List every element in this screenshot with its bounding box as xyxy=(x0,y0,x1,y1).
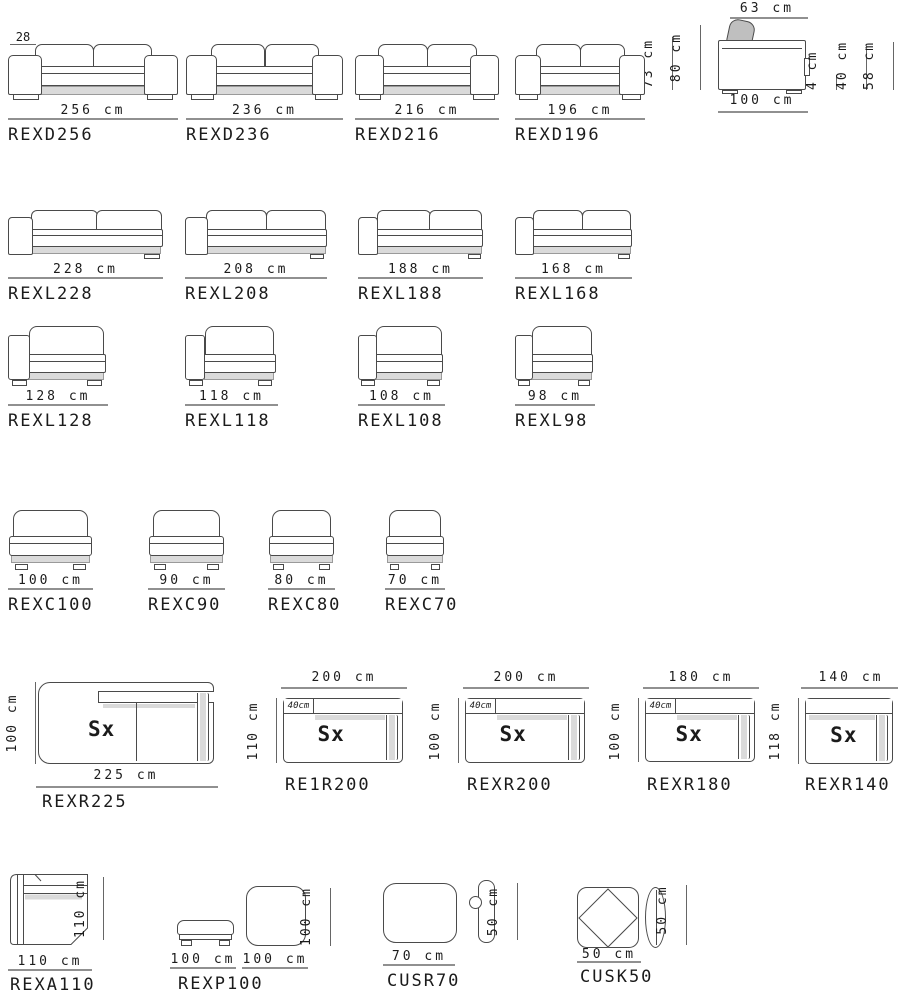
armrest-left xyxy=(8,335,30,380)
terminal-top-view-drawing: 40cm Sx xyxy=(645,698,755,762)
width-dim-label: 118 cm xyxy=(185,390,278,404)
depth-dim-label: 100 cm xyxy=(720,94,804,108)
dim-line xyxy=(638,698,639,762)
dim-line xyxy=(268,588,335,590)
dim-line xyxy=(463,687,589,689)
armrest-right xyxy=(197,693,209,761)
back-cushion xyxy=(272,510,331,539)
seat-cushion xyxy=(9,536,92,556)
seat-cushion xyxy=(149,536,224,556)
panel-rexl228: 228 cm REXL228 xyxy=(8,210,163,304)
armrest-left xyxy=(8,55,42,95)
sofa-side-body xyxy=(718,40,806,90)
dim-line xyxy=(643,687,759,689)
back-depth-dim-label: 40cm xyxy=(646,699,676,714)
panel-re1r200: 200 cm 110 cm 40cm Sx RE1R200 xyxy=(253,663,413,803)
panel-rexl108: 108 cm REXL108 xyxy=(358,326,445,431)
width-dim-label: 100 cm xyxy=(242,953,308,967)
dim-line xyxy=(330,888,331,946)
seat-cushion xyxy=(374,229,483,247)
armrest-right xyxy=(568,715,580,760)
foot xyxy=(618,254,630,259)
base-shade xyxy=(28,372,104,380)
dim-line xyxy=(385,588,445,590)
foot xyxy=(431,564,441,570)
dim-line xyxy=(577,961,641,963)
base-shade xyxy=(533,246,631,254)
seat-cushion xyxy=(374,354,444,373)
model-code: REXA110 xyxy=(10,975,96,995)
dim-line xyxy=(458,698,459,763)
module-one-arm-drawing xyxy=(8,326,108,386)
panel-rexd196: 196 cm REXD196 xyxy=(515,44,645,145)
width-dim-label: 228 cm xyxy=(8,263,163,277)
width-dim-label: 168 cm xyxy=(515,263,632,277)
model-code: REXR140 xyxy=(805,775,891,795)
model-code: REXL118 xyxy=(185,411,278,431)
dim-line xyxy=(185,277,327,279)
model-code: REXC100 xyxy=(8,595,93,615)
base-shade xyxy=(11,555,91,563)
foot xyxy=(361,380,374,386)
module-one-arm-drawing xyxy=(185,326,278,386)
panel-cusk50: 50 cm 50 cm CUSK50 xyxy=(570,855,710,1001)
width-dim-label: 100 cm xyxy=(170,953,236,967)
panel-rexd256: 28 256 cm REXD256 xyxy=(8,44,178,145)
foot xyxy=(154,564,166,570)
back-cushion xyxy=(376,326,441,357)
dim-line xyxy=(517,883,518,940)
foot xyxy=(12,380,27,386)
armrest-left xyxy=(515,55,541,95)
model-code: RE1R200 xyxy=(285,775,371,795)
back-cushion xyxy=(389,510,442,539)
model-code: REXL168 xyxy=(515,284,632,304)
depth-dim-label: 100 cm xyxy=(6,682,20,764)
module-one-arm-drawing xyxy=(358,326,445,386)
dim-line xyxy=(35,682,36,764)
armrest-left xyxy=(358,217,378,255)
panel-rexl118: 118 cm REXL118 xyxy=(185,326,278,431)
model-code: REXL98 xyxy=(515,411,595,431)
foot xyxy=(258,380,272,386)
armrest-left xyxy=(185,335,205,380)
seat-cushion xyxy=(32,66,154,86)
panel-rexc70: 70 cm REXC70 xyxy=(385,510,445,615)
panel-rexc80: 80 cm REXC80 xyxy=(268,510,335,615)
model-code: CUSR70 xyxy=(387,971,460,991)
depth-dim-label: 100 cm xyxy=(300,888,314,946)
width-dim-label: 128 cm xyxy=(8,390,108,404)
panel-rexd236: 236 cm REXD236 xyxy=(186,44,343,145)
dim-line xyxy=(8,969,92,971)
depth-dim-label: 110 cm xyxy=(247,699,261,763)
total-height-dim-label: 80 cm xyxy=(670,25,684,90)
model-code: REXL188 xyxy=(358,284,483,304)
dim-line xyxy=(103,877,104,940)
width-dim-label: 180 cm xyxy=(645,671,757,685)
armrest-right xyxy=(144,55,178,95)
seat-divider-line xyxy=(136,703,137,761)
panel-rexr140: 140 cm 118 cm Sx REXR140 xyxy=(775,663,899,803)
seat-cushion xyxy=(28,229,163,247)
model-code: REXR225 xyxy=(42,792,128,812)
back-cushion xyxy=(532,326,592,357)
dim-line xyxy=(383,964,455,966)
model-code: REXL128 xyxy=(8,411,108,431)
width-dim-label: 216 cm xyxy=(355,104,499,118)
button-detail xyxy=(469,896,482,909)
armrest-left xyxy=(186,55,217,95)
seat-cushion xyxy=(386,536,445,556)
armrest-left xyxy=(185,217,208,255)
dim-line xyxy=(242,967,308,969)
foot xyxy=(468,254,481,259)
dim-line xyxy=(358,277,483,279)
panel-rexr225: 100 cm Sx 225 cm REXR225 xyxy=(8,663,228,823)
dim-line xyxy=(8,118,178,120)
height-dim-label: 50 cm xyxy=(487,883,501,940)
dim-line xyxy=(893,42,894,90)
model-code: REXL208 xyxy=(185,284,327,304)
base-shade xyxy=(35,86,151,95)
arm-height-dim-label: 58 cm xyxy=(863,42,877,90)
base-shade xyxy=(206,246,325,254)
width-dim-label: 70 cm xyxy=(385,574,445,588)
depth-dim-label: 118 cm xyxy=(769,698,783,764)
model-code: REXR200 xyxy=(467,775,553,795)
dim-line xyxy=(36,786,218,788)
seat-cushion xyxy=(375,66,479,86)
model-code: REXC80 xyxy=(268,595,335,615)
foot xyxy=(219,940,230,946)
foot xyxy=(181,940,192,946)
width-dim-label: 196 cm xyxy=(515,104,645,118)
foot xyxy=(273,564,284,570)
sofa-two-arm-drawing xyxy=(355,44,499,100)
panel-rexc90: 90 cm REXC90 xyxy=(148,510,225,615)
dim-line xyxy=(686,885,687,945)
base-shade xyxy=(204,372,275,380)
clearance-dim-label: 4 cm xyxy=(806,54,820,90)
panel-rexl188: 188 cm REXL188 xyxy=(358,210,483,304)
base-shade xyxy=(211,86,318,95)
band-shade xyxy=(677,715,737,720)
foot xyxy=(15,564,29,570)
spec-sheet: 28 256 cm REXD256 236 cm REXD236 xyxy=(0,0,899,1001)
foot xyxy=(518,380,530,386)
module-armless-drawing xyxy=(268,510,335,570)
band-shade xyxy=(809,715,875,720)
backrest-band xyxy=(806,699,892,714)
width-dim-label: 70 cm xyxy=(383,950,455,964)
sofa-two-arm-drawing xyxy=(515,44,645,100)
width-dim-label: 200 cm xyxy=(283,671,405,685)
depth-dim-label: 110 cm xyxy=(74,877,88,940)
foot xyxy=(578,380,590,386)
base-shade xyxy=(387,555,443,563)
width-dim-label: 200 cm xyxy=(465,671,587,685)
base-shade xyxy=(377,246,482,254)
terminal-top-view-drawing: Sx xyxy=(805,698,893,764)
width-dim-label: 256 cm xyxy=(8,104,178,118)
armrest-left xyxy=(515,217,534,255)
foot xyxy=(73,564,87,570)
seat-cushion xyxy=(203,229,327,247)
foot xyxy=(310,254,324,259)
width-dim-label: 236 cm xyxy=(186,104,343,118)
seat-cushion xyxy=(530,229,632,247)
pouf-cushion xyxy=(177,920,234,935)
back-cushion xyxy=(153,510,221,539)
width-dim-label: 90 cm xyxy=(148,574,225,588)
width-dim-label: 100 cm xyxy=(8,574,93,588)
panel-rexl208: 208 cm REXL208 xyxy=(185,210,327,304)
sofa-one-arm-drawing xyxy=(185,210,327,259)
sx-marker: Sx xyxy=(88,717,115,741)
base-shade xyxy=(378,86,476,95)
seat-cushion xyxy=(202,354,276,373)
depth-dim-label: 100 cm xyxy=(429,699,443,763)
width-dim-label: 140 cm xyxy=(803,671,899,685)
armrest-right xyxy=(470,55,499,95)
base-shade xyxy=(531,372,592,380)
width-dim-label: 208 cm xyxy=(185,263,327,277)
width-dim-label: 225 cm xyxy=(38,769,214,783)
panel-rexr180: 180 cm 100 cm 40cm Sx REXR180 xyxy=(615,663,765,803)
seat-cushion xyxy=(529,354,593,373)
base-shade xyxy=(375,372,441,380)
diamond-stitch-detail xyxy=(578,888,637,947)
base-shade xyxy=(536,86,624,95)
width-dim-label: 98 cm xyxy=(515,390,595,404)
foot xyxy=(144,254,160,259)
back-cushion xyxy=(13,510,88,539)
dim-line xyxy=(281,687,407,689)
cushion-front-view-drawing xyxy=(383,883,457,943)
dim-line xyxy=(801,687,898,689)
model-code: CUSK50 xyxy=(580,967,653,987)
panel-rexr200: 200 cm 100 cm 40cm Sx REXR200 xyxy=(435,663,595,803)
dim-line xyxy=(8,588,93,590)
sofa-two-arm-drawing: 28 xyxy=(8,44,178,100)
dim-line xyxy=(185,404,278,406)
width-dim-label: 50 cm xyxy=(577,948,641,962)
sofa-one-arm-drawing xyxy=(358,210,483,259)
depth-dim-label: 100 cm xyxy=(609,699,623,763)
chaise-top-view-drawing: Sx xyxy=(38,682,214,764)
panel-rexp100: 100 cm 100 cm 100 cm REXP100 xyxy=(168,855,348,1001)
foot xyxy=(427,380,440,386)
panel-cusr70: 50 cm 70 cm CUSR70 xyxy=(375,855,525,1001)
foot xyxy=(207,564,219,570)
model-code: REXC90 xyxy=(148,595,225,615)
foot xyxy=(390,564,400,570)
seat-cushion xyxy=(533,66,627,86)
panel-rexd216: 216 cm REXD216 xyxy=(355,44,499,145)
sofa-one-arm-drawing xyxy=(8,210,163,259)
armrest-left xyxy=(355,55,384,95)
base-shade xyxy=(270,555,333,563)
pouf-top-view-drawing xyxy=(246,886,306,946)
width-dim-label: 80 cm xyxy=(268,574,335,588)
pouf-base xyxy=(179,934,232,940)
band-shade xyxy=(497,715,567,720)
armrest-right xyxy=(386,715,398,760)
model-code: REXR180 xyxy=(647,775,733,795)
width-dim-label: 188 cm xyxy=(358,263,483,277)
dim-line xyxy=(358,404,445,406)
panel-rexl128: 128 cm REXL128 xyxy=(8,326,108,431)
module-armless-drawing xyxy=(148,510,225,570)
back-cushion xyxy=(29,326,104,357)
dim-line xyxy=(8,404,108,406)
dim-line xyxy=(515,404,595,406)
back-cushion xyxy=(205,326,275,357)
dim-line xyxy=(355,118,499,120)
side-view-panel: 63 cm 73 cm 80 cm 4 cm 40 cm 58 cm 100 c… xyxy=(640,0,899,120)
model-code: REXL228 xyxy=(8,284,163,304)
foot xyxy=(189,380,203,386)
armrest-left xyxy=(8,217,33,255)
sofa-one-arm-drawing xyxy=(515,210,632,259)
sx-marker: Sx xyxy=(830,723,857,747)
model-code: REXL108 xyxy=(358,411,445,431)
armrest-right xyxy=(619,55,645,95)
seat-cushion xyxy=(269,536,335,556)
back-depth-dim-label: 40cm xyxy=(284,699,314,714)
seat-depth-dim-label: 63 cm xyxy=(732,2,802,16)
armrest-right xyxy=(876,715,888,761)
dim-line xyxy=(276,698,277,763)
armrest-right xyxy=(738,715,750,759)
sx-marker: Sx xyxy=(318,722,345,746)
model-code: REXD196 xyxy=(515,125,645,145)
armrest-left xyxy=(358,335,377,380)
dim-line xyxy=(730,17,808,19)
model-code: REXD256 xyxy=(8,125,178,145)
terminal-top-view-drawing: 40cm Sx xyxy=(465,698,585,763)
dim-line xyxy=(718,111,808,113)
width-dim-label: 108 cm xyxy=(358,390,445,404)
height-dim-label: 50 cm xyxy=(656,880,670,940)
band-shade xyxy=(103,704,195,708)
seat-cushion xyxy=(26,354,106,373)
panel-rexl168: 168 cm REXL168 xyxy=(515,210,632,304)
foot xyxy=(319,564,330,570)
foot xyxy=(87,380,102,386)
dim-line xyxy=(148,588,225,590)
cushion-front-view-drawing xyxy=(577,887,639,948)
module-armless-drawing xyxy=(8,510,93,570)
dim-line xyxy=(8,277,163,279)
band-shade xyxy=(315,715,385,720)
dim-line xyxy=(515,277,632,279)
dim-line xyxy=(700,25,701,90)
panel-rexa110: 110 cm 110 cm REXA110 xyxy=(8,855,128,1001)
model-code: REXP100 xyxy=(178,974,264,994)
pouf-side-view-drawing xyxy=(177,920,234,946)
sx-marker: Sx xyxy=(676,722,703,746)
armrest-right xyxy=(312,55,343,95)
dim-line xyxy=(515,118,645,120)
module-armless-drawing xyxy=(385,510,445,570)
base-shade xyxy=(150,555,222,563)
dim-line xyxy=(170,967,236,969)
dim-line xyxy=(798,698,799,764)
sofa-two-arm-drawing xyxy=(186,44,343,100)
dim-line xyxy=(186,118,343,120)
model-code: REXC70 xyxy=(385,595,445,615)
armrest-left xyxy=(515,335,533,380)
module-one-arm-drawing xyxy=(515,326,595,386)
panel-rexc100: 100 cm REXC100 xyxy=(8,510,93,615)
model-code: REXD216 xyxy=(355,125,499,145)
sx-marker: Sx xyxy=(500,722,527,746)
width-dim-label: 110 cm xyxy=(8,955,92,969)
panel-rexl98: 98 cm REXL98 xyxy=(515,326,595,431)
seat-height-dim-label: 40 cm xyxy=(836,46,850,90)
seat-cushion xyxy=(208,66,321,86)
model-code: REXD236 xyxy=(186,125,343,145)
base-shade xyxy=(31,246,161,254)
terminal-top-view-drawing: 40cm Sx xyxy=(283,698,403,763)
back-depth-dim-label: 40cm xyxy=(466,699,496,714)
arm-width-dim-label: 28 xyxy=(10,31,36,45)
